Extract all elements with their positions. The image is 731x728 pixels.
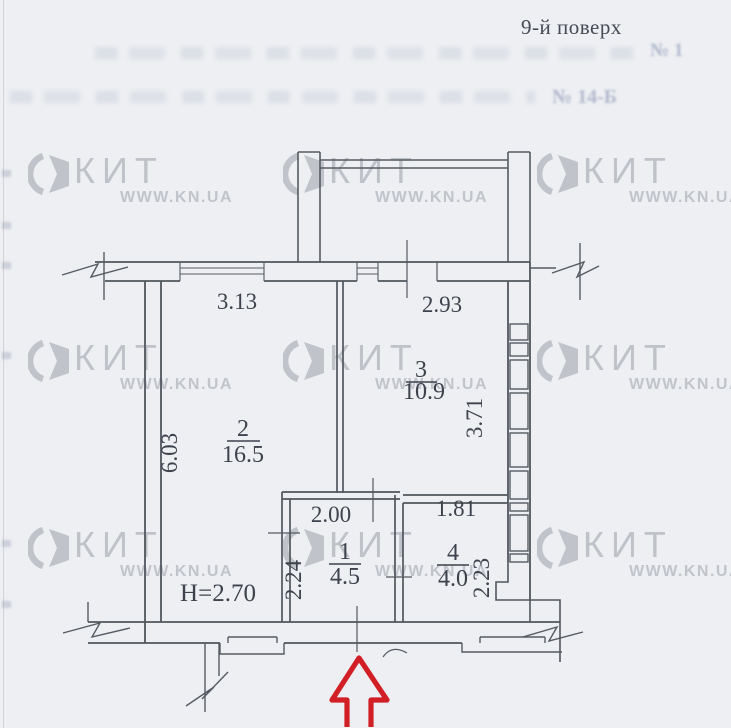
room4-number: 4 (447, 540, 459, 566)
room1-area: 4.5 (330, 564, 360, 590)
room2-number: 2 (237, 416, 249, 442)
dim-room1-depth: 2.24 (281, 559, 306, 600)
dim-room1-width: 2.00 (311, 502, 351, 527)
room-labels: 2 16.5 3 10.9 1 4.5 4 4.0 (222, 357, 469, 592)
room4-area: 4.0 (438, 566, 468, 592)
balcony-outline (298, 152, 530, 262)
dimension-labels: 3.13 2.93 6.03 3.71 2.00 1.81 2.24 2.23 … (157, 289, 494, 607)
dim-room3-depth: 3.71 (462, 398, 487, 438)
dim-room4-depth: 2.23 (469, 558, 494, 598)
room4-label: 4 4.0 (437, 540, 469, 592)
entry-threshold (220, 637, 562, 654)
balcony-door (407, 240, 437, 298)
dim-room2-depth: 6.03 (157, 433, 182, 473)
room1-label: 1 4.5 (329, 539, 361, 590)
room2-area: 16.5 (222, 442, 264, 468)
dim-room2-width: 3.13 (217, 289, 257, 314)
entrance-arrow (332, 658, 387, 727)
dim-room3-width: 2.93 (422, 292, 462, 317)
scanned-floor-plan-page: № 1 № 14-Б 9-й поверх КИТ WWW.KN.UA КИТ … (0, 0, 731, 728)
room3-label: 3 10.9 (403, 357, 445, 405)
window-room2 (180, 262, 264, 281)
bottom-right-wall-steps (496, 562, 560, 662)
room1-number: 1 (339, 539, 351, 565)
wall-break-marks (62, 243, 599, 712)
room2-label: 2 16.5 (222, 416, 264, 468)
dim-room4-width: 1.81 (436, 496, 476, 521)
floor-plan-drawing: 3.13 2.93 6.03 3.71 2.00 1.81 2.24 2.23 … (0, 0, 731, 728)
room3-area: 10.9 (403, 379, 445, 405)
ventilation-shaft-blocks (510, 324, 528, 562)
window-room3 (357, 262, 378, 281)
ceiling-height-label: H=2.70 (180, 580, 256, 607)
